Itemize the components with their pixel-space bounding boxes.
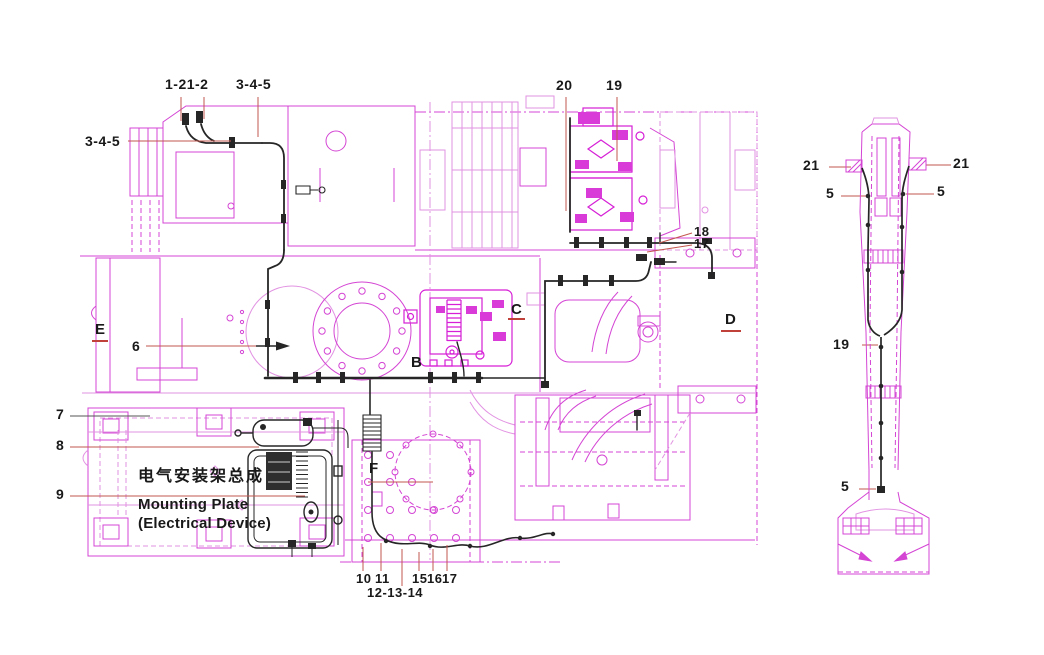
- letter-c-underline: [508, 318, 525, 320]
- cad-linework: [0, 0, 1044, 655]
- callout-8: 8: [56, 438, 64, 452]
- callout-3-4-5-top: 3-4-5: [236, 77, 271, 91]
- callout-10: 10: [356, 572, 371, 585]
- letter-e-underline: [92, 340, 108, 342]
- callout-3-4-5-left: 3-4-5: [85, 134, 120, 148]
- pump-assembly: [570, 108, 680, 236]
- side-boom-cable: [862, 166, 909, 493]
- callout-17: 17: [694, 237, 709, 250]
- view-letter-b: B: [411, 355, 422, 370]
- chassis-frame: [80, 102, 757, 562]
- view-letter-d: D: [725, 312, 736, 327]
- callout-7: 7: [56, 407, 64, 421]
- side-callout-5-bottom: 5: [841, 479, 849, 493]
- cooler-assembly: [500, 390, 706, 540]
- side-callout-19: 19: [833, 337, 850, 351]
- callout-19: 19: [606, 78, 623, 92]
- electrical-device: [235, 186, 348, 557]
- diagram-canvas: 1-21-2 3-4-5 3-4-5 20 19 18 17 E 6 B C D…: [0, 0, 1044, 655]
- caption-english-line2: (Electrical Device): [138, 516, 271, 531]
- letter-d-underline: [721, 330, 741, 332]
- callout-12-13-14: 12-13-14: [367, 586, 423, 599]
- callout-16: 16: [427, 572, 442, 585]
- callout-20: 20: [556, 78, 573, 92]
- frame-arm: [655, 238, 756, 470]
- callout-6: 6: [132, 339, 140, 353]
- callout-9: 9: [56, 487, 64, 501]
- side-callout-5-right: 5: [937, 184, 945, 198]
- callout-17-bottom: 17: [442, 572, 457, 585]
- side-callout-21-left: 21: [803, 158, 820, 172]
- side-callout-5-left: 5: [826, 186, 834, 200]
- side-boom: [838, 118, 929, 574]
- callout-1-21-2: 1-21-2: [165, 77, 208, 91]
- center-flange: [246, 282, 411, 380]
- callout-11: 11: [375, 572, 390, 585]
- callout-15: 15: [412, 572, 427, 585]
- view-letter-f: F: [369, 461, 379, 476]
- caption-english-line1: Mounting Plate: [138, 497, 248, 512]
- callout-arrow-6: [70, 342, 290, 417]
- side-callout-21-right: 21: [953, 156, 970, 170]
- view-letter-e: E: [95, 322, 106, 337]
- caption-chinese: 电气安装架总成: [138, 469, 264, 485]
- view-letter-c: C: [511, 302, 522, 317]
- radiator-panel: [452, 96, 554, 248]
